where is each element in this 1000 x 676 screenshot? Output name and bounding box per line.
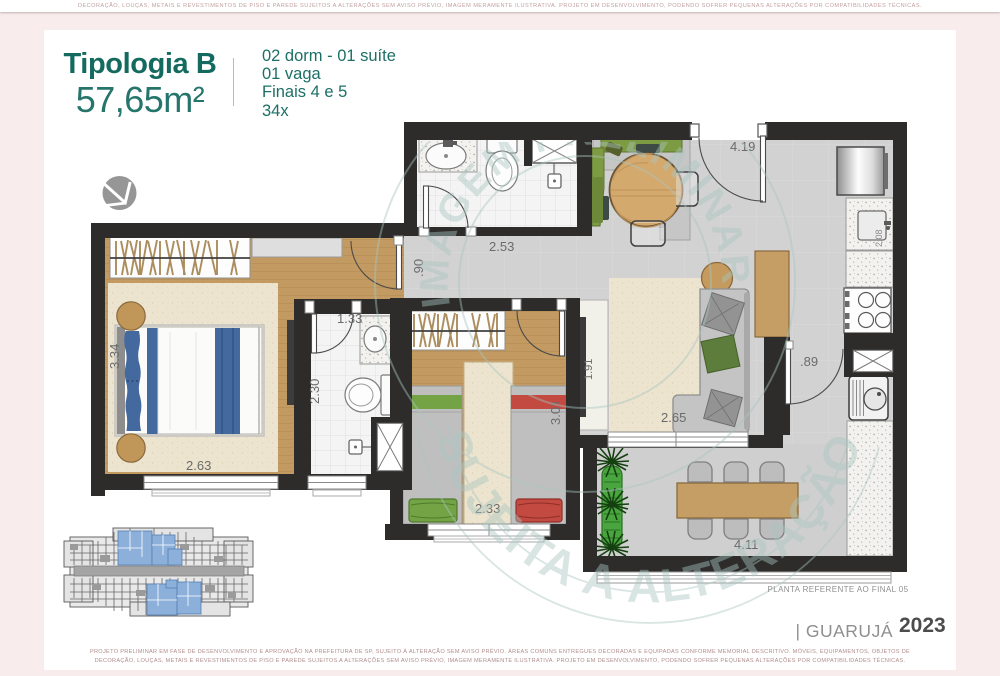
svg-text:3.34: 3.34 [107,344,122,369]
svg-text:1.33: 1.33 [337,311,362,326]
svg-text:2.30: 2.30 [307,379,322,404]
svg-text:2.65: 2.65 [661,410,686,425]
svg-text:1.91: 1.91 [583,359,595,380]
svg-text:2.08: 2.08 [874,229,884,247]
svg-text:.89: .89 [800,354,818,369]
svg-text:2.63: 2.63 [186,458,211,473]
svg-text:4.19: 4.19 [730,139,755,154]
svg-text:PLANTA REFERENTE AO FINAL 05: PLANTA REFERENTE AO FINAL 05 [767,585,908,594]
svg-text:| GUARUJÁ: | GUARUJÁ [795,621,893,641]
svg-text:2.53: 2.53 [489,239,514,254]
svg-text:2023: 2023 [899,614,946,637]
